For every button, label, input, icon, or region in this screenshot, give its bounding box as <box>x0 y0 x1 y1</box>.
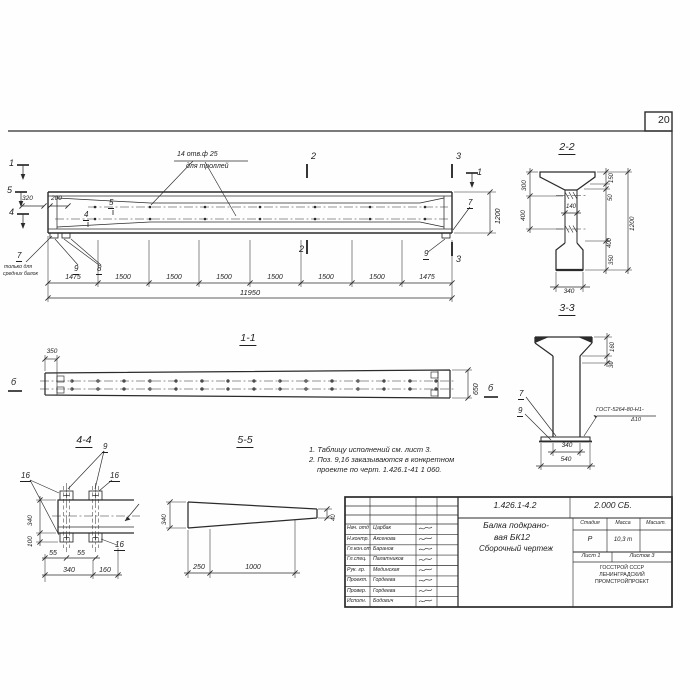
org-line1: ГОССТРОЙ СССР <box>600 566 644 571</box>
doc-code: 2.000 СБ. <box>594 501 632 510</box>
chain-dim: 1500 <box>115 274 131 281</box>
section-3-3-linework <box>525 333 656 470</box>
dim-320: 320 <box>22 196 33 203</box>
chain-dim: 1500 <box>369 274 385 281</box>
sig-name: Палатников <box>373 557 404 562</box>
sig-role: Гл.кон.от <box>347 547 371 552</box>
dim-340-33: 340 <box>562 443 573 450</box>
dim-650: 650 <box>473 383 480 395</box>
note-7-line2: средних балок <box>3 272 38 277</box>
cut-marker-3-bottom: 3 <box>456 255 461 264</box>
weld-note-line1: ГОСТ-5264-80-Н1- <box>596 408 644 414</box>
dim-160-33: 160 <box>610 342 616 352</box>
dim-340-22: 340 <box>564 289 575 296</box>
dim-400-right-22: 400 <box>607 238 613 248</box>
sig-name: Гордеева <box>373 578 395 583</box>
dim-1200-22: 1200 <box>630 217 637 231</box>
dim-40-55: 40 <box>331 514 337 521</box>
weld-note-line2: Δ10 <box>631 418 641 424</box>
section-5-5-label: 5-5 <box>236 435 253 448</box>
dim-100-44: 100 <box>28 536 35 547</box>
dim-55-a: 55 <box>49 550 57 557</box>
mass-value: 10,3 т <box>614 537 632 543</box>
dim-340-bottom-44: 340 <box>63 567 75 574</box>
section-4-4-label: 4-4 <box>75 435 92 448</box>
chain-dim: 1475 <box>65 274 81 281</box>
cut-marker-b-right: б <box>488 384 493 393</box>
pos-label-16-c: 16 <box>114 541 125 551</box>
sig-role: Рук. гр. <box>347 568 365 573</box>
note-7-line1: только для <box>4 265 32 270</box>
chain-dim: 1475 <box>419 274 435 281</box>
drawing-title-line1: Балка подкрано- <box>483 521 549 530</box>
sig-role: Проект. <box>347 578 368 583</box>
page-number: 20 <box>658 115 670 126</box>
cut-marker-2-bottom: 2 <box>299 245 304 254</box>
sig-role: Провер. <box>347 589 366 594</box>
sig-name: Гордеева <box>373 589 395 594</box>
col-mass: Масса <box>615 521 630 526</box>
chain-dim: 1500 <box>318 274 334 281</box>
dim-300-22: 300 <box>522 180 529 191</box>
dim-30-33: 30 <box>609 361 615 368</box>
org-line3: ПРОМСТРОЙПРОЕКТ <box>595 580 649 585</box>
doc-number: 1.426.1-4.2 <box>493 501 536 510</box>
pos-label-8: 8 <box>96 265 102 275</box>
org-line2: ЛЕНИНГРАДСКИЙ <box>599 573 644 578</box>
sig-name: Баранов <box>373 547 393 552</box>
pos-label-16-b: 16 <box>109 472 120 482</box>
sig-name: Бодович <box>373 599 393 604</box>
dim-140-22: 140 <box>566 204 576 210</box>
section-2-2-label: 2-2 <box>558 142 575 155</box>
sig-role: Нач. отд <box>347 526 369 531</box>
pos-label-4: 4 <box>83 211 89 221</box>
dim-400-left-22: 400 <box>521 210 528 221</box>
signature-marks <box>419 527 432 602</box>
section-2-2-linework <box>526 168 632 292</box>
dim-540-33: 540 <box>561 457 572 464</box>
sig-role: Исполн. <box>347 599 366 604</box>
cut-marker-3-top: 3 <box>456 152 461 161</box>
col-scale: Масшт. <box>646 521 666 526</box>
dim-150-22: 150 <box>609 173 615 183</box>
chain-dim: 1500 <box>166 274 182 281</box>
pos-label-5: 5 <box>108 199 114 209</box>
drawing-sheet: 20 14 отв.ф 25 для троллей 1 5 4 320 200… <box>0 0 700 700</box>
cut-marker-5-left: 5 <box>7 186 12 195</box>
pos-label-16-a: 16 <box>20 472 31 482</box>
col-stage: Стадия <box>580 521 599 526</box>
dim-55-b: 55 <box>77 550 85 557</box>
dim-50-22: 50 <box>608 194 614 201</box>
sheet-label: Лист 1 <box>581 554 600 560</box>
pos-label-9-33: 9 <box>517 407 523 417</box>
dim-350: 350 <box>47 349 58 356</box>
pos-label-9-right: 9 <box>423 250 429 260</box>
drawing-linework <box>0 0 700 700</box>
pos-label-7-right: 7 <box>467 199 473 209</box>
dim-1200-main: 1200 <box>495 208 502 224</box>
stage-value: Р <box>588 536 593 543</box>
section-4-4-linework <box>30 451 140 582</box>
holes-note-line1: 14 отв.ф 25 <box>177 151 218 158</box>
note-line-1: 1. Таблицу исполнений см. лист 3. <box>309 446 432 454</box>
note-line-2: 2. Поз. 9,16 заказываются в конкретном <box>309 456 454 464</box>
section-1-1-linework <box>8 355 498 401</box>
dim-1000-55: 1000 <box>245 564 261 571</box>
cut-marker-1-left: 1 <box>9 159 14 168</box>
section-1-1-label: 1-1 <box>239 333 256 346</box>
sig-name: Аксенова <box>373 537 396 542</box>
drawing-title-line3: Сборочный чертеж <box>479 545 553 553</box>
note-line-3: проекте по черт. 1.426.1-41 1 060. <box>317 466 442 474</box>
sig-name: Мединская <box>373 568 399 573</box>
pos-label-9-44: 9 <box>102 443 108 453</box>
sheets-label: Листов 3 <box>629 554 654 560</box>
dim-350-22: 350 <box>609 255 615 265</box>
section-3-3-label: 3-3 <box>558 303 575 316</box>
pos-label-7: 7 <box>16 252 22 262</box>
cut-marker-4-left: 4 <box>9 208 14 217</box>
sig-role: Гл.спец. <box>347 557 367 562</box>
chain-dim: 1500 <box>216 274 232 281</box>
pos-label-7-33: 7 <box>518 390 524 400</box>
dim-160-44: 160 <box>99 567 111 574</box>
dim-340-left-44: 340 <box>28 515 35 526</box>
drawing-title-line2: вая БК12 <box>494 533 530 542</box>
holes-note-line2: для троллей <box>186 163 229 170</box>
dim-340-55: 340 <box>162 514 169 525</box>
dim-250-55: 250 <box>193 564 205 571</box>
dim-200: 200 <box>51 196 62 203</box>
cut-marker-1-right: 1 <box>477 168 482 177</box>
sig-role: Н.контр. <box>347 537 369 542</box>
cut-marker-b-left: б <box>11 378 16 387</box>
sig-name: Царбак <box>373 526 391 531</box>
dim-total-11950: 11950 <box>240 289 260 297</box>
cut-marker-2-top: 2 <box>311 152 316 161</box>
chain-dim: 1500 <box>267 274 283 281</box>
